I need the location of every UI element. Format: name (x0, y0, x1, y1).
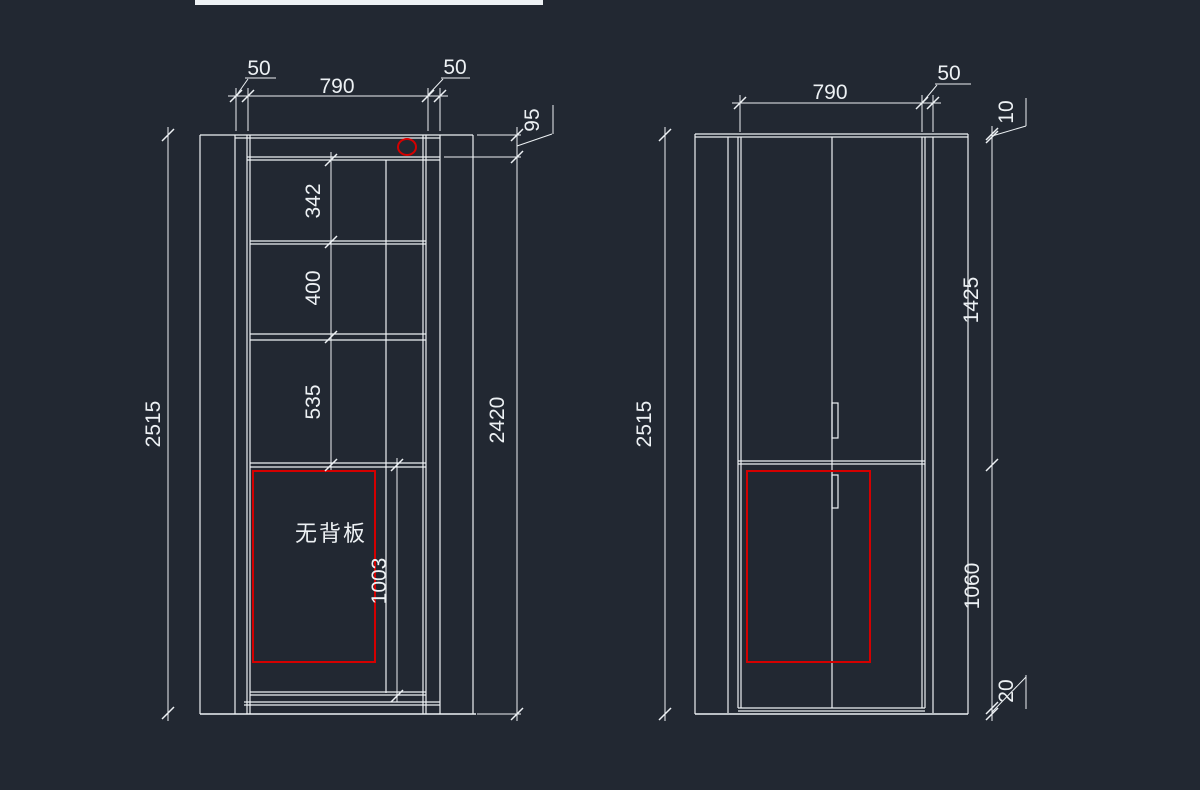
dim-label-1003: 1003 (368, 558, 391, 605)
no-back-panel-label: 无背板 (295, 521, 367, 546)
dim-label-20: 20 (995, 679, 1018, 702)
dim-label-400: 400 (302, 270, 325, 305)
dim-label-2420: 2420 (486, 397, 509, 444)
model-space-background (0, 0, 1200, 790)
dim-label-95: 95 (521, 108, 544, 131)
dim-label-50-right: 50 (443, 56, 466, 79)
dim-label-535: 535 (302, 384, 325, 419)
dim-label-50-left: 50 (247, 57, 270, 80)
dim-label-10: 10 (995, 100, 1018, 123)
dim-label-50-right-view: 50 (937, 62, 960, 85)
cad-canvas: 无背板 50 790 50 2515 (0, 0, 1200, 790)
dim-label-790-left: 790 (319, 75, 354, 98)
dim-label-342: 342 (302, 183, 325, 218)
dim-label-2515-right: 2515 (633, 401, 656, 448)
dim-label-1060: 1060 (961, 563, 984, 610)
title-block-edge (195, 0, 543, 5)
dim-label-2515-left: 2515 (142, 401, 165, 448)
dim-label-790-right: 790 (812, 81, 847, 104)
dim-label-1425: 1425 (960, 277, 983, 324)
